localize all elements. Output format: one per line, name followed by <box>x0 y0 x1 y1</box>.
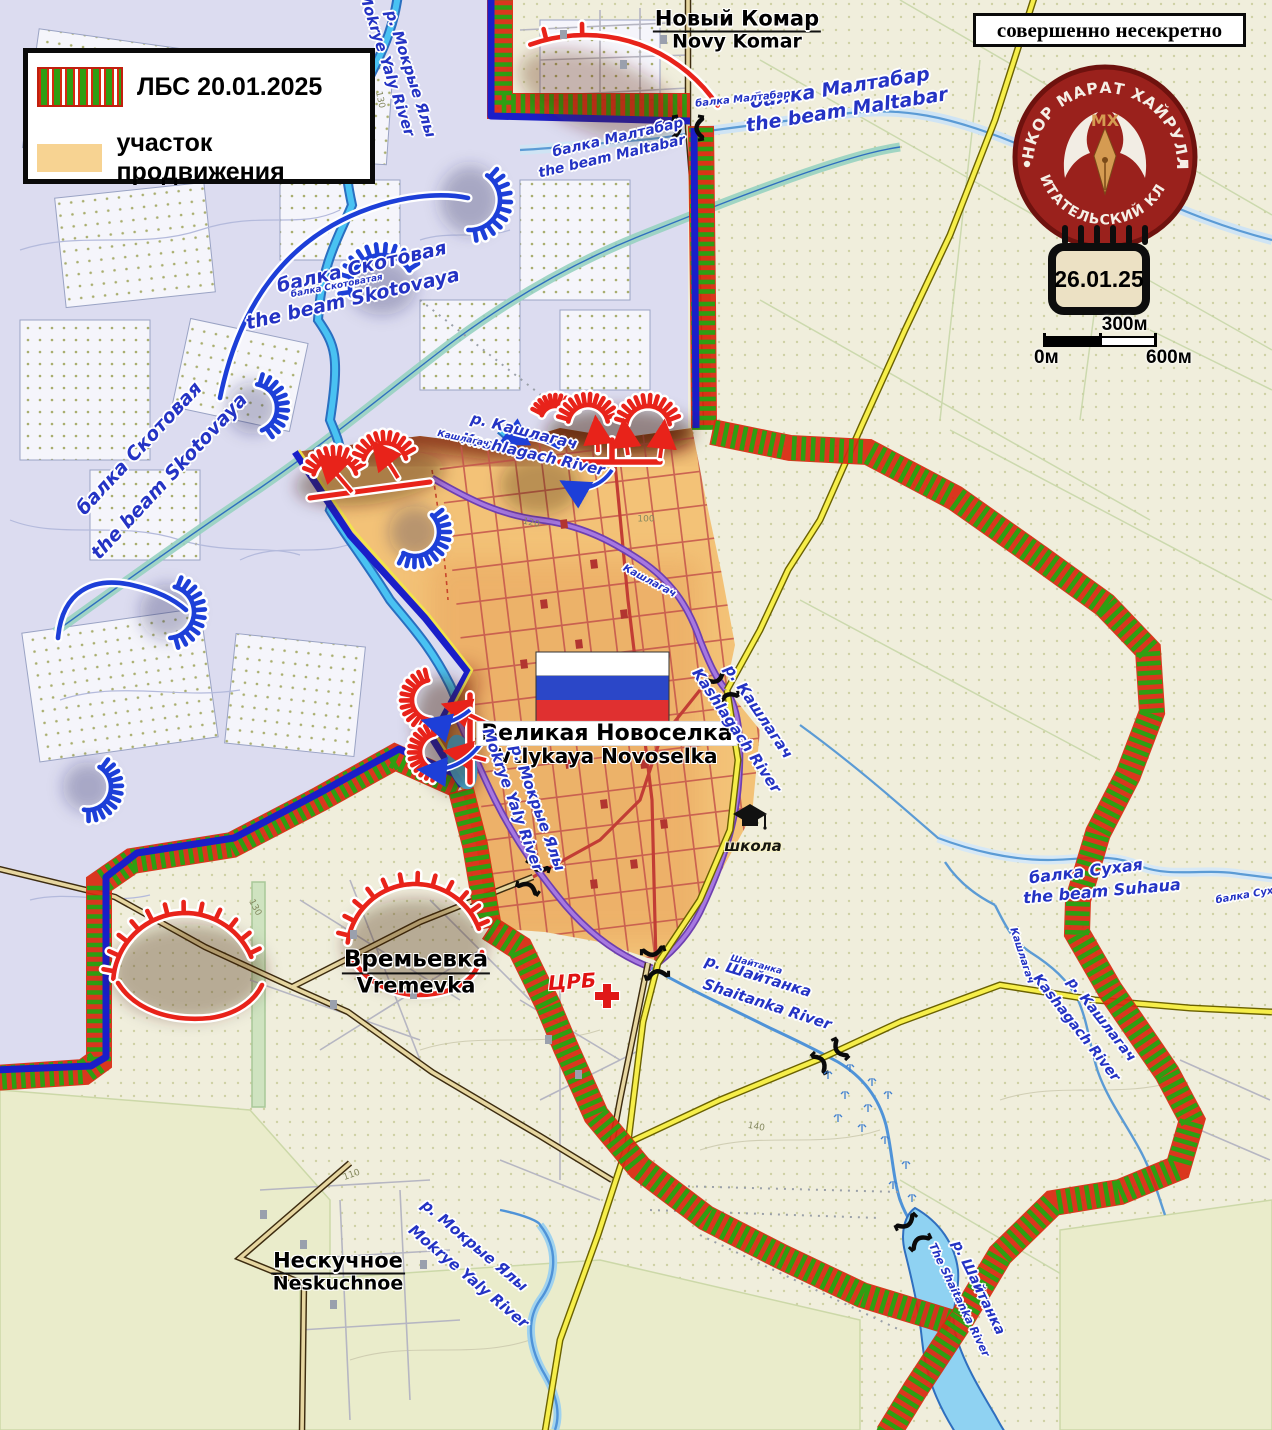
calendar-ring-icon <box>1062 225 1068 245</box>
scale-mid-label: 300м <box>1102 314 1148 336</box>
scale-end-label: 600м <box>1146 347 1192 369</box>
russian-flag-icon <box>536 652 669 724</box>
lbs-label: ЛБС 20.01.2025 <box>137 73 322 102</box>
scale-bar: 300м 0м 600м <box>1030 314 1190 364</box>
secrecy-banner: совершенно несекретно <box>973 13 1246 47</box>
logo-monogram: МХ <box>1091 111 1120 130</box>
legend-box: ЛБС 20.01.2025 участок продвижения <box>23 48 375 184</box>
club-logo: ВОЕНКОР МАРАТ ХАЙРУЛЛИН ЧИТАТЕЛЬСКИЙ КЛУ… <box>1012 64 1198 250</box>
calendar-date: 26.01.25 <box>1054 266 1144 293</box>
red-arrow-symbol <box>624 425 628 455</box>
advance-label: участок продвижения <box>116 129 370 187</box>
red-arrow-symbol <box>660 426 664 458</box>
red-arrow-symbol <box>596 422 598 452</box>
war-map: Новый КомарNovy KomarВремьевкаVremevkaНе… <box>0 0 1272 1430</box>
scale-start-label: 0м <box>1034 347 1059 369</box>
calendar-icon: 26.01.25 <box>1048 243 1150 315</box>
lbs-line-swatch-icon <box>37 67 123 107</box>
advance-area-swatch-icon <box>37 144 102 172</box>
